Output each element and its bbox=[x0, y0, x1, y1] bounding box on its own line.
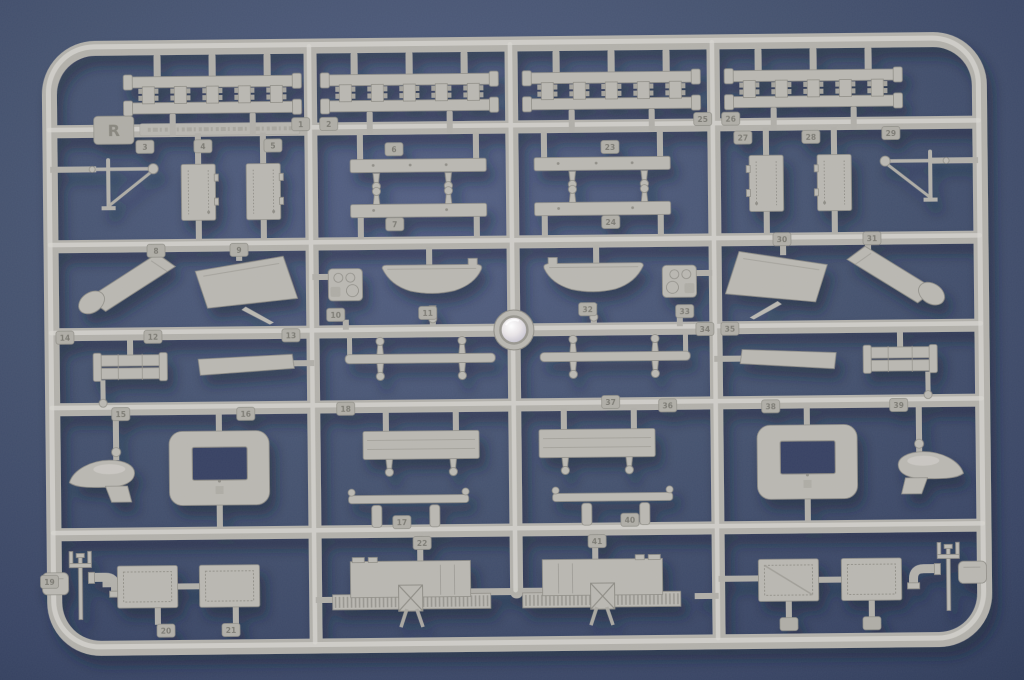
sprue-photo-canvas: R bbox=[0, 0, 1024, 680]
sprue-photo: R bbox=[0, 0, 1024, 680]
photo-grain-overlay bbox=[0, 0, 1024, 680]
